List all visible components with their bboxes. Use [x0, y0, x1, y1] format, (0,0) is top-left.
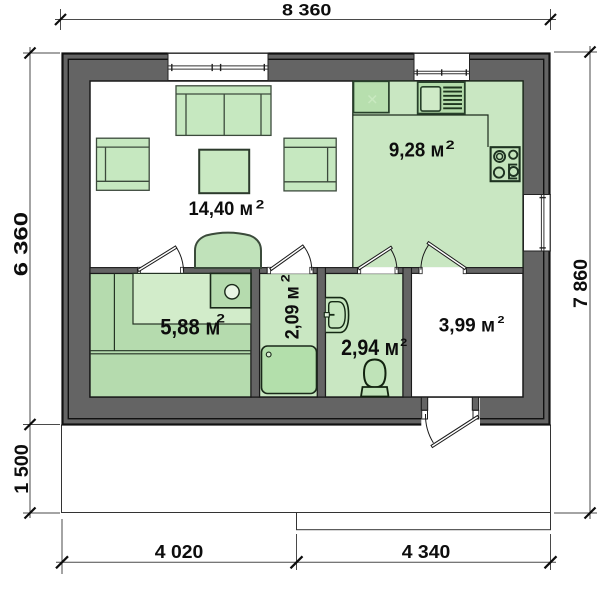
- svg-text:7 860: 7 860: [571, 259, 592, 308]
- svg-text:2,09 м: 2,09 м: [282, 286, 303, 339]
- svg-text:2: 2: [446, 138, 455, 152]
- svg-text:14,40 м: 14,40 м: [189, 199, 254, 220]
- svg-text:2: 2: [281, 274, 293, 282]
- svg-text:2: 2: [216, 312, 225, 326]
- svg-text:2: 2: [256, 198, 265, 212]
- svg-text:9,28 м: 9,28 м: [389, 140, 444, 162]
- svg-text:2: 2: [498, 314, 505, 326]
- svg-text:3,99 м: 3,99 м: [439, 314, 495, 336]
- svg-text:6 360: 6 360: [11, 212, 32, 276]
- svg-text:1 500: 1 500: [12, 444, 33, 494]
- svg-text:8 360: 8 360: [282, 2, 331, 20]
- svg-text:2,94 м: 2,94 м: [341, 335, 399, 360]
- svg-text:5,88 м: 5,88 м: [160, 315, 220, 340]
- svg-text:2: 2: [400, 337, 407, 349]
- svg-text:4 020: 4 020: [155, 541, 204, 562]
- svg-text:4 340: 4 340: [402, 541, 451, 562]
